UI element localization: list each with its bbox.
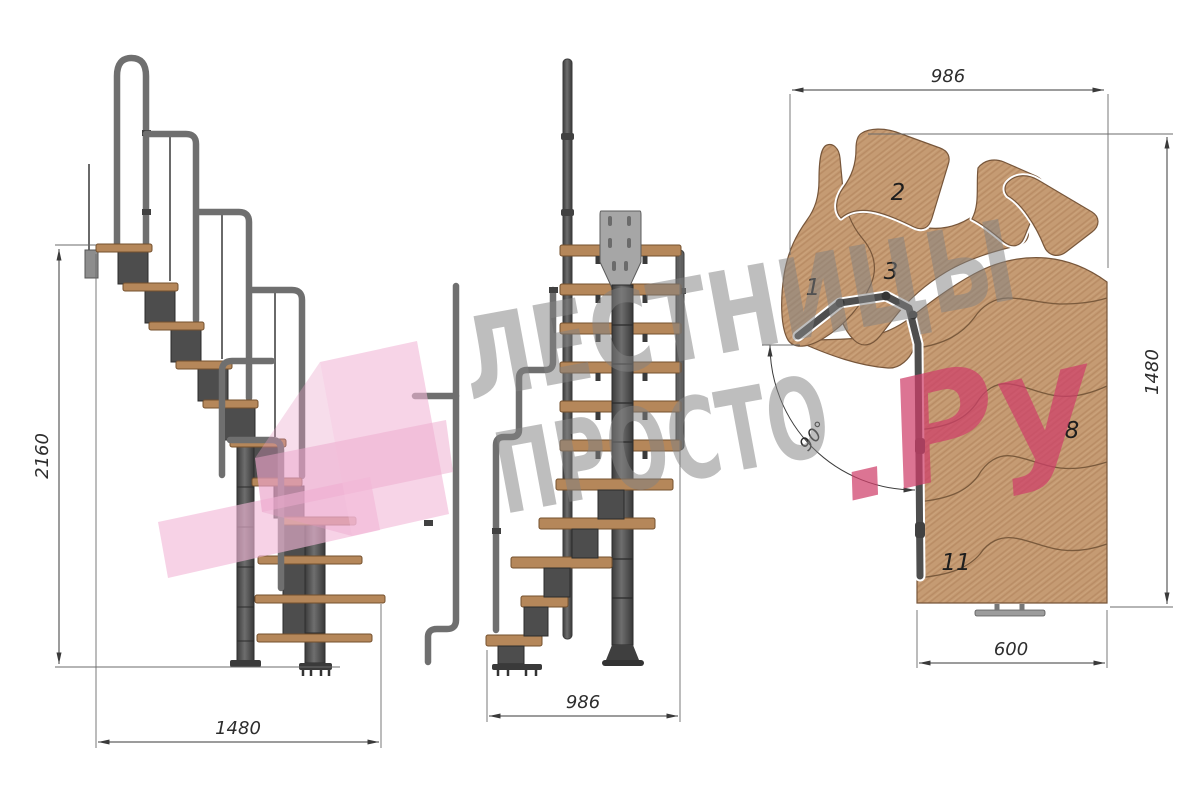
step-module xyxy=(118,252,148,284)
tread xyxy=(258,556,362,564)
tread xyxy=(521,596,568,607)
tread xyxy=(149,322,204,330)
pole-joint xyxy=(561,133,574,140)
column-base-flare xyxy=(606,645,639,660)
rail-joint xyxy=(142,209,151,215)
tread xyxy=(96,244,152,252)
tread-number-2: 2 xyxy=(891,180,906,206)
tread xyxy=(486,635,542,646)
width-dimension-label: 986 xyxy=(566,692,600,713)
baluster-joint xyxy=(915,522,925,538)
technical-drawing-page: 2160 1480 xyxy=(0,0,1200,790)
column-base xyxy=(230,660,261,667)
step-module xyxy=(225,408,255,440)
rail-joint xyxy=(424,520,433,526)
base-plate xyxy=(492,664,542,670)
tread xyxy=(511,557,612,568)
foot-bracket xyxy=(975,610,1045,616)
plan-top-dimension-label: 986 xyxy=(931,66,965,87)
step-module xyxy=(572,529,598,558)
foot-bracket-tabs xyxy=(997,604,1022,610)
step-module xyxy=(524,607,548,636)
handrail-loop xyxy=(117,58,146,247)
column-base xyxy=(299,663,332,670)
tread xyxy=(255,595,385,603)
tread xyxy=(257,634,372,642)
staircase-drawing: 2160 1480 xyxy=(0,0,1200,790)
tread xyxy=(123,283,178,291)
height-dimension-label: 2160 xyxy=(32,433,53,479)
step-module xyxy=(498,646,524,664)
anchor-bolts xyxy=(303,670,329,676)
tread xyxy=(203,400,258,408)
column-base-plate xyxy=(602,660,644,666)
length-dimension-label: 1480 xyxy=(215,718,261,739)
anchor-bolts xyxy=(498,670,536,676)
pole-joint xyxy=(561,209,574,216)
rail-joint xyxy=(492,528,501,534)
plan-right-dimension-label: 1480 xyxy=(1142,349,1163,395)
step-module xyxy=(145,291,175,323)
step-module xyxy=(171,330,201,362)
step-module xyxy=(544,568,570,597)
tread-number-11: 11 xyxy=(941,550,970,576)
plan-bottom-dimension-label: 600 xyxy=(994,639,1028,660)
